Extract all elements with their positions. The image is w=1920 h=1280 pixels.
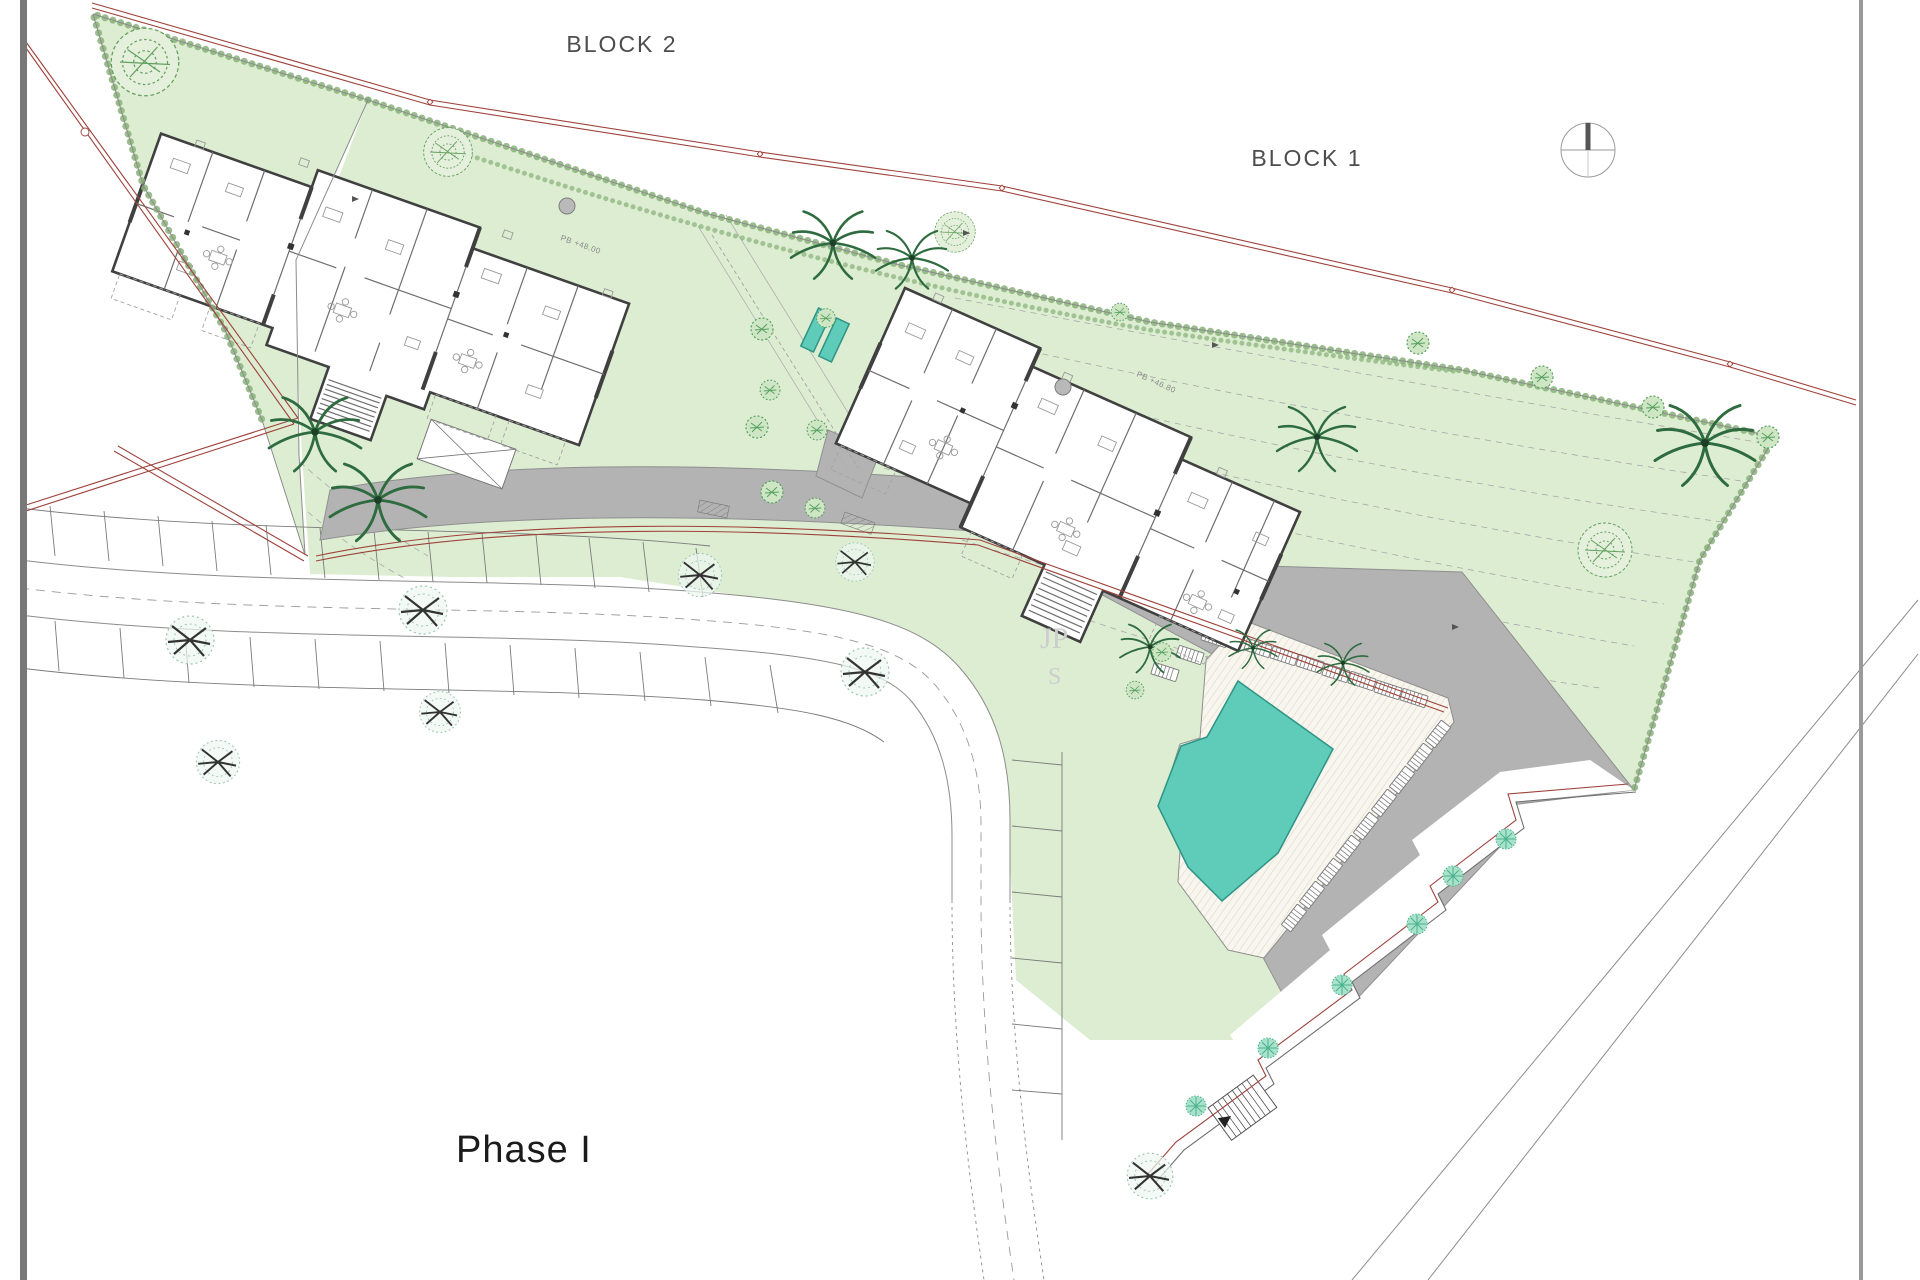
main-green-field <box>296 100 1775 1040</box>
frame-bar-right <box>1859 0 1863 1280</box>
block1-label: BLOCK 1 <box>1251 145 1362 171</box>
frame-bar-left <box>20 0 27 1280</box>
watermark-2: S <box>1048 664 1061 690</box>
block2-label: BLOCK 2 <box>566 31 677 57</box>
phase-label: Phase I <box>456 1129 592 1171</box>
site-plan: BLOCK 2 BLOCK 1 Phase I PB +48.00 PB +46… <box>0 0 1920 1280</box>
watermark: JP <box>1040 622 1068 655</box>
access-road <box>20 560 1044 1280</box>
north-compass-icon <box>1561 123 1615 177</box>
site-plan-canvas: BLOCK 2 BLOCK 1 Phase I PB +48.00 PB +46… <box>0 0 1920 1280</box>
